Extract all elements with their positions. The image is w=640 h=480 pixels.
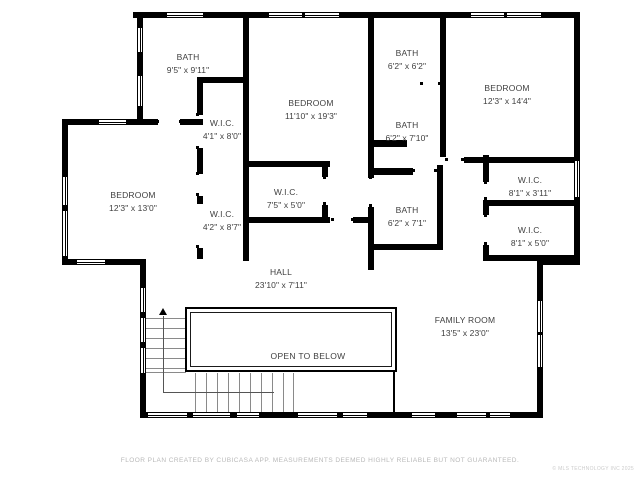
room-label: BATH9'5" x 9'11" <box>167 51 209 77</box>
wall-segment <box>483 255 580 261</box>
wall-segment <box>243 18 249 261</box>
room-dimensions: 4'2" x 8'7" <box>203 221 241 234</box>
door-marker-dot <box>196 146 199 149</box>
stair-tread <box>146 368 185 369</box>
door-marker-dot <box>445 158 448 161</box>
room-label: W.I.C.7'5" x 5'0" <box>267 186 305 212</box>
window-mullion <box>269 15 302 16</box>
stair-tread <box>283 373 284 412</box>
stair-walkline <box>163 392 274 393</box>
wall-segment <box>368 18 374 147</box>
room-dimensions: 6'2" x 6'2" <box>388 60 426 73</box>
window-mullion <box>507 15 541 16</box>
window <box>137 27 143 53</box>
window-mullion <box>193 415 230 416</box>
window <box>140 317 146 343</box>
window-mullion <box>65 177 66 205</box>
window-mullion <box>540 301 541 332</box>
room-label: W.I.C.4'1" x 8'0" <box>203 117 241 143</box>
door-marker-dot <box>484 214 487 217</box>
railing-right-bar <box>393 372 395 413</box>
wall-segment <box>180 119 203 125</box>
window-mullion <box>343 415 367 416</box>
door-marker-dot <box>434 169 437 172</box>
room-name: W.I.C. <box>509 174 551 187</box>
window-mullion <box>471 15 504 16</box>
door-marker-dot <box>412 169 415 172</box>
door-marker-dot <box>484 197 487 200</box>
room-label: BATH6'2" x 6'2" <box>388 47 426 73</box>
window <box>76 259 106 265</box>
room-name: FAMILY ROOM <box>435 314 495 327</box>
window-mullion <box>237 415 259 416</box>
window <box>166 12 204 18</box>
stair-tread <box>293 373 294 412</box>
door-marker-dot <box>369 204 372 207</box>
room-dimensions: 4'1" x 8'0" <box>203 130 241 143</box>
window <box>137 75 143 107</box>
door-marker-dot <box>420 82 423 85</box>
window <box>98 119 127 125</box>
disclaimer-text: FLOOR PLAN CREATED BY CUBICASA APP. MEAS… <box>0 457 640 464</box>
room-name: W.I.C. <box>511 224 549 237</box>
wall-segment <box>197 77 249 83</box>
door-marker-dot <box>196 113 199 116</box>
room-name: BEDROOM <box>285 97 337 110</box>
window <box>268 12 303 18</box>
room-name: BATH <box>385 119 428 132</box>
room-label: W.I.C.4'2" x 8'7" <box>203 208 241 234</box>
window <box>537 334 543 368</box>
room-label: BEDROOM12'3" x 14'4" <box>483 82 531 108</box>
room-name: BATH <box>388 204 426 217</box>
room-dimensions: 8'1" x 3'11" <box>509 187 551 200</box>
window-mullion <box>140 76 141 106</box>
wall-segment <box>374 168 413 175</box>
copyright-text: © MLS TECHNOLOGY INC 2025 <box>552 466 634 472</box>
window-mullion <box>140 28 141 52</box>
stair-tread <box>146 328 185 329</box>
door-marker-dot <box>438 82 441 85</box>
room-name: W.I.C. <box>267 186 305 199</box>
stair-walkline <box>163 316 164 393</box>
window <box>297 412 338 418</box>
room-name: BEDROOM <box>483 82 531 95</box>
wall-segment <box>574 12 580 265</box>
room-label: W.I.C.8'1" x 5'0" <box>511 224 549 250</box>
wall-segment <box>368 207 374 270</box>
room-name: BEDROOM <box>109 189 157 202</box>
door-marker-dot <box>484 242 487 245</box>
window <box>470 12 505 18</box>
window <box>537 300 543 333</box>
stair-tread <box>146 348 185 349</box>
room-label: BATH6'2" x 7'10" <box>385 119 428 145</box>
wall-segment <box>437 165 443 248</box>
window <box>140 347 146 374</box>
window-mullion <box>77 262 105 263</box>
stair-tread <box>146 358 185 359</box>
door-marker-dot <box>484 181 487 184</box>
window <box>489 412 511 418</box>
floor-plan-canvas: BATH9'5" x 9'11"W.I.C.4'1" x 8'0"BEDROOM… <box>0 0 640 480</box>
window <box>304 12 340 18</box>
window <box>236 412 260 418</box>
stair-direction-arrow-icon <box>159 308 167 315</box>
door-marker-dot <box>179 120 182 123</box>
room-label: BEDROOM11'10" x 19'3" <box>285 97 337 123</box>
wall-segment <box>197 83 203 115</box>
room-name: W.I.C. <box>203 117 241 130</box>
window-mullion <box>143 318 144 342</box>
window-mullion <box>298 415 337 416</box>
window-mullion <box>540 335 541 367</box>
room-dimensions: 8'1" x 5'0" <box>511 237 549 250</box>
window-mullion <box>143 288 144 312</box>
window <box>506 12 542 18</box>
room-label: BEDROOM12'3" x 13'0" <box>109 189 157 215</box>
room-dimensions: 12'3" x 14'4" <box>483 95 531 108</box>
wall-segment <box>440 18 446 157</box>
room-label: BATH6'2" x 7'1" <box>388 204 426 230</box>
window-mullion <box>412 415 435 416</box>
room-dimensions: 23'10" x 7'11" <box>255 279 307 292</box>
window-mullion <box>577 161 578 197</box>
window-mullion <box>305 15 339 16</box>
wall-segment <box>62 119 98 125</box>
window <box>411 412 436 418</box>
room-dimensions: 7'5" x 5'0" <box>267 199 305 212</box>
room-dimensions: 6'2" x 7'1" <box>388 217 426 230</box>
room-dimensions: 9'5" x 9'11" <box>167 64 209 77</box>
window <box>62 176 68 206</box>
window <box>574 160 580 198</box>
stair-corner-line <box>146 372 186 373</box>
room-name: BATH <box>388 47 426 60</box>
room-dimensions: 12'3" x 13'0" <box>109 202 157 215</box>
wall-segment <box>489 200 580 206</box>
room-dimensions: 11'10" x 19'3" <box>285 110 337 123</box>
wall-segment <box>464 157 580 163</box>
room-label: FAMILY ROOM13'5" x 23'0" <box>435 314 495 340</box>
wall-segment <box>249 217 330 223</box>
wall-segment <box>197 196 203 204</box>
room-name: HALL <box>255 266 307 279</box>
window-mullion <box>99 122 126 123</box>
room-name: W.I.C. <box>203 208 241 221</box>
room-name: BATH <box>167 51 209 64</box>
wall-segment <box>197 148 203 174</box>
window-mullion <box>148 415 187 416</box>
wall-segment <box>483 155 489 182</box>
wall-segment <box>197 248 203 259</box>
door-marker-dot <box>461 158 464 161</box>
floor-plan-page: BATH9'5" x 9'11"W.I.C.4'1" x 8'0"BEDROOM… <box>0 0 640 480</box>
window-mullion <box>457 415 486 416</box>
stair-tread <box>146 338 185 339</box>
door-marker-dot <box>196 245 199 248</box>
door-marker-dot <box>369 176 372 179</box>
window <box>140 287 146 313</box>
window-mullion <box>490 415 510 416</box>
window-mullion <box>65 211 66 256</box>
room-dimensions: 6'2" x 7'10" <box>385 132 428 145</box>
room-label: W.I.C.8'1" x 3'11" <box>509 174 551 200</box>
open-to-below-label: OPEN TO BELOW <box>271 351 346 361</box>
window-mullion <box>143 348 144 373</box>
window <box>62 210 68 257</box>
wall-segment <box>370 244 443 250</box>
room-dimensions: 13'5" x 23'0" <box>435 327 495 340</box>
window <box>147 412 188 418</box>
window <box>456 412 487 418</box>
window-mullion <box>167 15 203 16</box>
door-marker-dot <box>323 202 326 205</box>
window <box>342 412 368 418</box>
window <box>192 412 231 418</box>
door-marker-dot <box>196 193 199 196</box>
door-marker-dot <box>331 218 334 221</box>
door-marker-dot <box>323 176 326 179</box>
room-label: HALL23'10" x 7'11" <box>255 266 307 292</box>
door-marker-dot <box>196 172 199 175</box>
wall-segment <box>127 119 158 125</box>
stair-tread <box>146 318 185 319</box>
door-marker-dot <box>156 120 159 123</box>
door-marker-dot <box>351 218 354 221</box>
wall-segment <box>249 161 330 167</box>
